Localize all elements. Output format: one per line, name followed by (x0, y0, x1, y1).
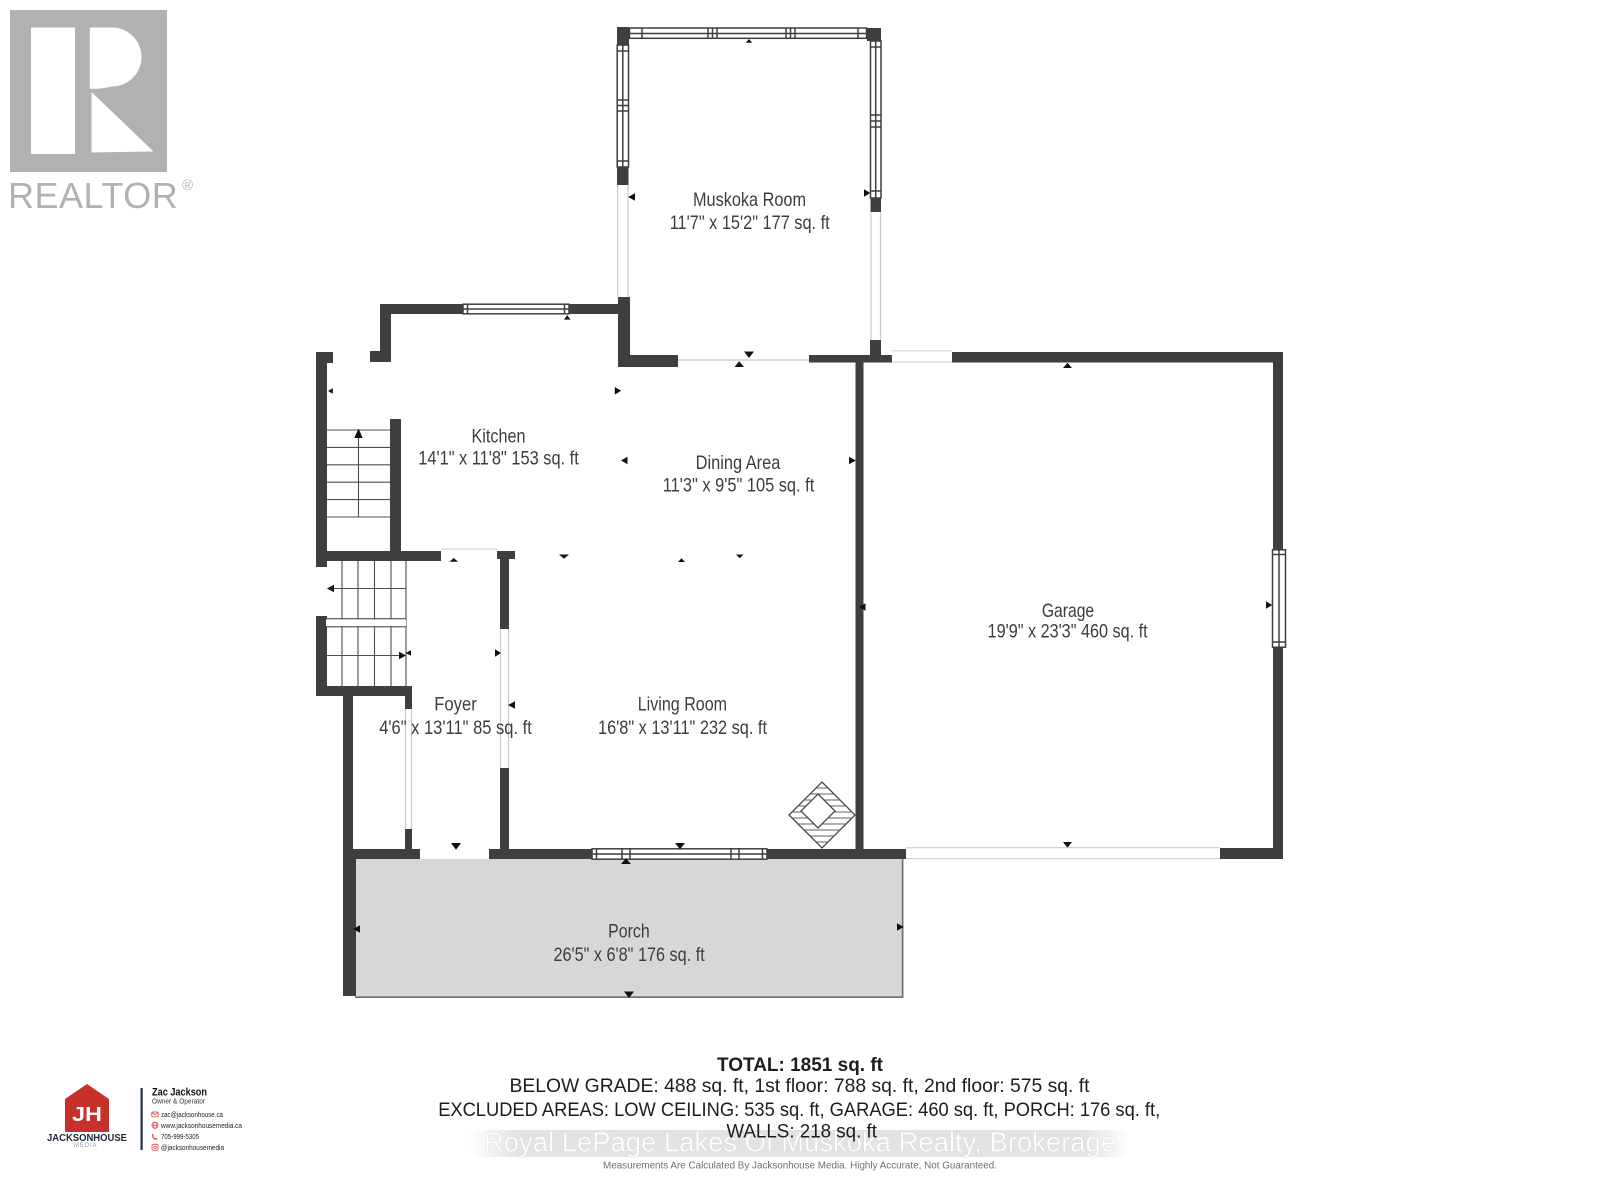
svg-text:JH: JH (72, 1104, 102, 1126)
svg-text:Kitchen: Kitchen (472, 426, 526, 448)
svg-text:EXCLUDED AREAS: LOW CEILING: 5: EXCLUDED AREAS: LOW CEILING: 535 sq. ft,… (438, 1099, 1160, 1121)
svg-text:Muskoka Room: Muskoka Room (693, 189, 806, 211)
svg-text:®: ® (182, 177, 193, 194)
svg-text:4'6" x 13'11" 85 sq. ft: 4'6" x 13'11" 85 sq. ft (379, 717, 532, 739)
svg-text:MEDIA: MEDIA (74, 1143, 100, 1149)
svg-text:26'5" x 6'8" 176 sq. ft: 26'5" x 6'8" 176 sq. ft (553, 944, 705, 966)
svg-text:REALTOR: REALTOR (8, 175, 178, 216)
svg-text:Measurements Are Calculated By: Measurements Are Calculated By Jacksonho… (603, 1160, 997, 1171)
svg-text:Dining Area: Dining Area (696, 452, 781, 474)
svg-text:BELOW GRADE: 488 sq. ft, 1st f: BELOW GRADE: 488 sq. ft, 1st floor: 788 … (510, 1075, 1091, 1097)
svg-text:705-999-5305: 705-999-5305 (161, 1132, 199, 1141)
svg-text:TOTAL: 1851 sq. ft: TOTAL: 1851 sq. ft (717, 1054, 883, 1076)
svg-text:19'9" x 23'3" 460 sq. ft: 19'9" x 23'3" 460 sq. ft (988, 620, 1148, 642)
svg-text:WALLS: 218 sq. ft: WALLS: 218 sq. ft (726, 1120, 877, 1142)
svg-text:11'3" x 9'5" 105 sq. ft: 11'3" x 9'5" 105 sq. ft (663, 475, 815, 497)
svg-text:14'1" x 11'8" 153 sq. ft: 14'1" x 11'8" 153 sq. ft (418, 448, 579, 470)
svg-text:zac@jacksonhouse.ca: zac@jacksonhouse.ca (161, 1110, 224, 1119)
svg-text:Living Room: Living Room (638, 694, 727, 716)
svg-text:www.jacksonhousemedia.ca: www.jacksonhousemedia.ca (160, 1121, 243, 1130)
svg-text:@jacksonhousemedia: @jacksonhousemedia (161, 1143, 225, 1152)
svg-text:11'7" x 15'2" 177 sq. ft: 11'7" x 15'2" 177 sq. ft (670, 212, 830, 234)
svg-text:16'8" x 13'11" 232 sq. ft: 16'8" x 13'11" 232 sq. ft (598, 717, 767, 739)
svg-text:Owner & Operator: Owner & Operator (152, 1097, 205, 1106)
svg-text:Porch: Porch (608, 921, 650, 943)
svg-text:Foyer: Foyer (434, 694, 477, 716)
svg-text:Garage: Garage (1042, 600, 1094, 622)
